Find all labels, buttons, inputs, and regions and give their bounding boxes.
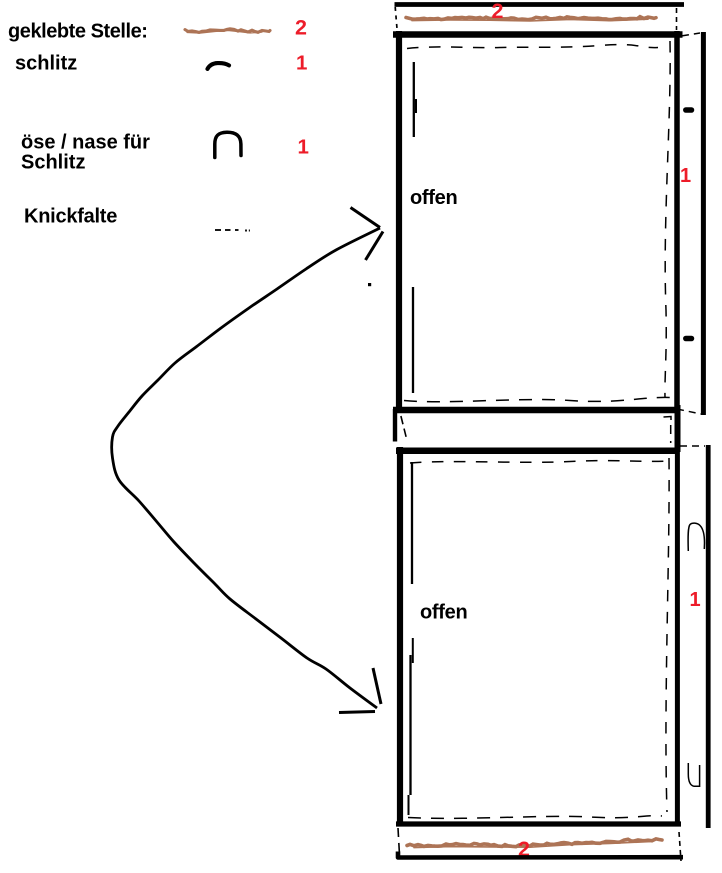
svg-text:geklebte Stelle:: geklebte Stelle: bbox=[8, 21, 148, 43]
svg-text:1: 1 bbox=[680, 165, 691, 187]
svg-text:offen: offen bbox=[420, 602, 467, 624]
svg-text:Schlitz: Schlitz bbox=[21, 152, 85, 174]
svg-text:1: 1 bbox=[298, 136, 309, 159]
svg-text:1: 1 bbox=[690, 589, 701, 611]
svg-text:schlitz: schlitz bbox=[15, 53, 77, 75]
svg-text:öse / nase für: öse / nase für bbox=[21, 132, 150, 154]
svg-text:2: 2 bbox=[295, 16, 307, 40]
svg-text:Knickfalte: Knickfalte bbox=[24, 206, 117, 228]
svg-text:offen: offen bbox=[410, 187, 457, 209]
svg-text:1: 1 bbox=[296, 52, 307, 75]
svg-text:2: 2 bbox=[492, 0, 504, 23]
